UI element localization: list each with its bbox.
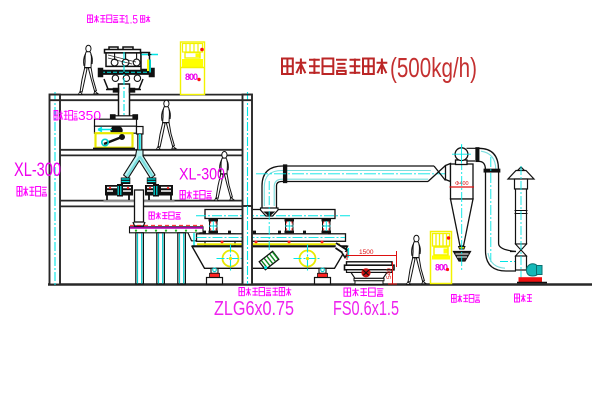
- svg-text:540: 540: [386, 268, 393, 279]
- svg-text:ZLG6x0.75: ZLG6x0.75: [214, 298, 294, 320]
- svg-text:350: 350: [78, 109, 101, 123]
- svg-text:1500: 1500: [359, 249, 374, 256]
- svg-text:FS0.6x1.5: FS0.6x1.5: [333, 298, 399, 320]
- svg-text:800: 800: [185, 72, 198, 82]
- svg-text:1.5: 1.5: [124, 13, 138, 27]
- svg-text:XL-300: XL-300: [14, 160, 61, 181]
- svg-text:XL-300: XL-300: [179, 166, 225, 184]
- svg-text:800: 800: [435, 263, 448, 273]
- svg-text:(500kg/h): (500kg/h): [390, 52, 477, 83]
